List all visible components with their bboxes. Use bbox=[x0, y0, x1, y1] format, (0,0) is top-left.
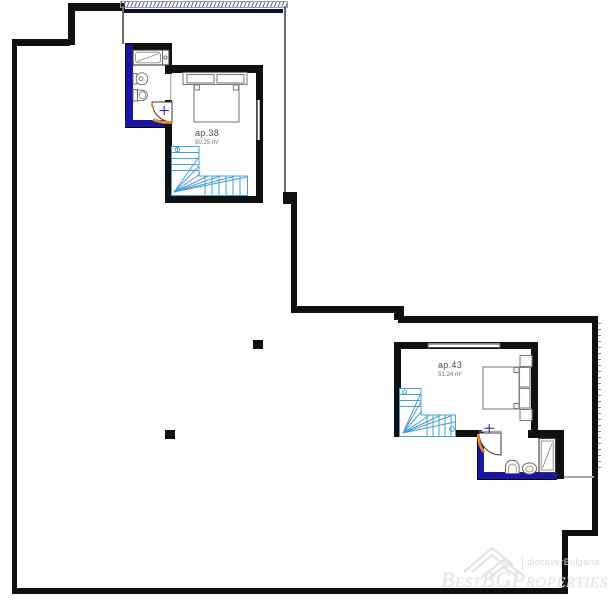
apartment-area-ap38: 50.25 m² bbox=[185, 140, 229, 146]
toilet-icon-ap38 bbox=[133, 90, 147, 102]
apartment-area-ap43: 51.24 m² bbox=[428, 372, 472, 378]
staircase-ap43 bbox=[400, 389, 456, 437]
door-ap38 bbox=[152, 74, 173, 123]
toilet-icon-ap43 bbox=[506, 460, 520, 473]
bed-ap43 bbox=[483, 356, 532, 421]
shower-icon-ap43 bbox=[539, 439, 556, 473]
bathtub-icon bbox=[133, 50, 169, 65]
apartment-label-ap38: ap.38 bbox=[185, 128, 229, 138]
sink-icon-ap38 bbox=[133, 73, 148, 85]
door-ap43 bbox=[478, 424, 502, 455]
staircase-ap38 bbox=[172, 147, 248, 196]
window-ap38 bbox=[257, 100, 260, 140]
floor-plan-canvas: ap.38 50.25 m² ap.43 51.24 m² discoverBu… bbox=[0, 0, 608, 600]
watermark-tagline: discoverBulgaria bbox=[527, 557, 600, 567]
sink-icon-ap43 bbox=[523, 463, 537, 474]
watermark-brand: BestBGProperties bbox=[441, 567, 608, 593]
apartment-label-ap43: ap.43 bbox=[428, 360, 472, 370]
bed-ap38 bbox=[183, 73, 247, 123]
window-ap43 bbox=[428, 343, 500, 349]
